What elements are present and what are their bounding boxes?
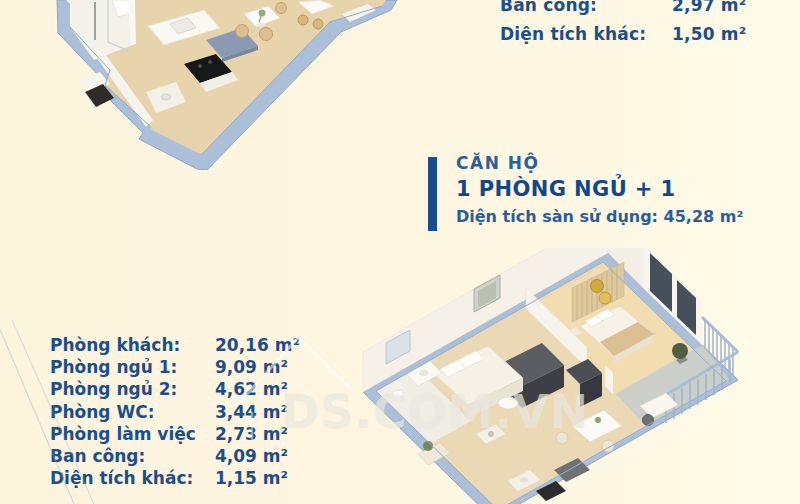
area-label: Diện tích khác: <box>50 467 215 489</box>
area-value: 20,16 m² <box>215 335 300 355</box>
area-value: 1,50 m² <box>672 24 746 44</box>
area-value: 9,09 m² <box>215 357 288 377</box>
area-value: 2,73 m² <box>215 424 288 444</box>
floorplan-3d-main <box>358 248 740 504</box>
area-label: Ban công: <box>50 445 215 467</box>
area-label: Diện tích khác: <box>500 20 672 49</box>
area-label: Phòng ngủ 2: <box>50 378 215 400</box>
area-row: Diện tích khác:1,50 m² <box>500 20 746 49</box>
area-label: Phòng WC: <box>50 401 215 423</box>
area-row: Phòng ngủ 2:4,62 m² <box>50 378 300 400</box>
heading-title: 1 PHÒNG NGỦ + 1 <box>456 177 743 201</box>
area-label: Phòng khách: <box>50 334 215 356</box>
heading-kicker: CĂN HỘ <box>456 153 743 173</box>
summary-top-list: Ban công:2,97 m² Diện tích khác:1,50 m² <box>500 0 746 49</box>
room-area-table: Phòng khách:20,16 m² Phòng ngủ 1:9,09 m²… <box>50 334 300 489</box>
floorplan-3d-top-partial <box>0 0 400 170</box>
area-value: 2,97 m² <box>672 0 746 15</box>
area-row: Phòng ngủ 1:9,09 m² <box>50 356 300 378</box>
area-label: Phòng làm việc <box>50 423 215 445</box>
apartment-heading: CĂN HỘ 1 PHÒNG NGỦ + 1 Diện tích sàn sử … <box>428 153 743 226</box>
area-value: 3,44 m² <box>215 402 288 422</box>
area-row: Ban công:4,09 m² <box>50 445 300 467</box>
area-value: 1,15 m² <box>215 468 288 488</box>
heading-accent-bar <box>428 157 437 231</box>
area-value: 4,62 m² <box>215 379 288 399</box>
area-row: Diện tích khác:1,15 m² <box>50 467 300 489</box>
area-label: Phòng ngủ 1: <box>50 356 215 378</box>
area-value: 4,09 m² <box>215 446 288 466</box>
area-row: Phòng WC:3,44 m² <box>50 401 300 423</box>
area-row: Phòng làm việc2,73 m² <box>50 423 300 445</box>
heading-subtitle: Diện tích sàn sử dụng: 45,28 m² <box>456 207 743 226</box>
brochure-page: Ban công:2,97 m² Diện tích khác:1,50 m² … <box>0 0 800 504</box>
area-row: Phòng khách:20,16 m² <box>50 334 300 356</box>
area-label: Ban công: <box>500 0 672 20</box>
area-row: Ban công:2,97 m² <box>500 0 746 20</box>
